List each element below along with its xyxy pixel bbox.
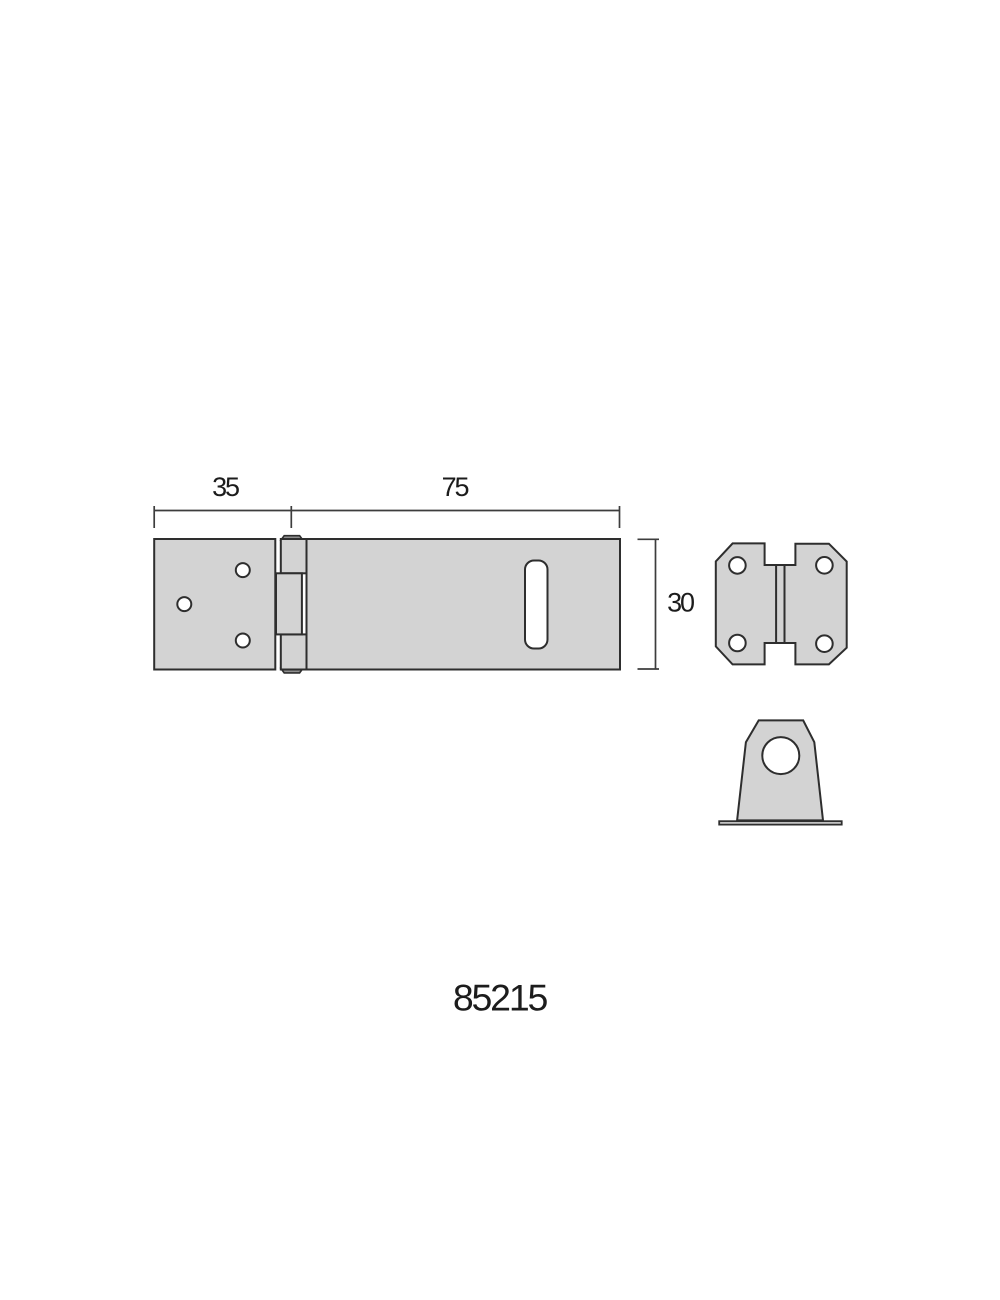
svg-text:30: 30: [667, 588, 694, 618]
svg-text:75: 75: [442, 472, 469, 502]
svg-text:85215: 85215: [453, 977, 548, 1019]
svg-text:35: 35: [212, 472, 239, 502]
